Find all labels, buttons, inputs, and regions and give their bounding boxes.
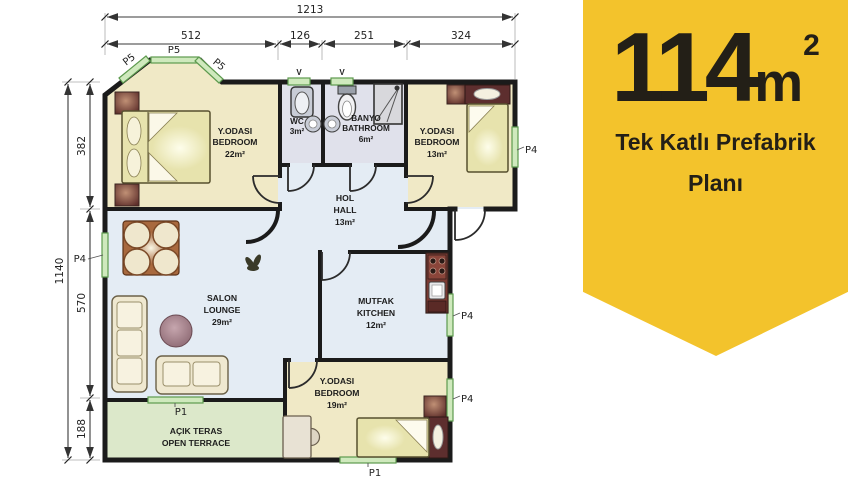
door-terrace: [148, 397, 203, 403]
sofa-cushion: [193, 362, 220, 386]
room-name-en: BEDROOM: [213, 137, 258, 147]
coffee-table: [160, 315, 192, 347]
tag-p5: P5: [168, 45, 180, 56]
dim-top-seg: 126: [290, 30, 310, 42]
dim-top-seg: 251: [354, 30, 374, 42]
dim-top-seg: 512: [181, 30, 201, 42]
room-name-tr: SALON: [207, 293, 237, 303]
room-name-en: BEDROOM: [415, 137, 460, 147]
badge-title-line1: Tek Katlı Prefabrik: [583, 128, 848, 157]
dining-chair: [153, 249, 179, 275]
room-area: 19m²: [327, 400, 347, 410]
room-area: 13m²: [427, 149, 447, 159]
tag-p4: P4: [525, 145, 537, 156]
pillow: [127, 149, 141, 177]
kitchen-fixtures: [426, 253, 448, 313]
room-name-tr: MUTFAK: [358, 296, 395, 306]
area-superscript: 2: [803, 29, 820, 62]
bed-highlight: [365, 425, 405, 451]
room-area: 6m²: [359, 135, 374, 144]
dim-top-seg: 324: [451, 30, 471, 42]
dim-left-seg: 188: [76, 419, 88, 439]
tag-p4: P4: [461, 311, 473, 322]
dim-left-seg: 382: [76, 136, 88, 156]
room-name-en: OPEN TERRACE: [162, 438, 231, 448]
room-name-en: BATHROOM: [342, 124, 390, 133]
room-name-tr: HOL: [336, 193, 354, 203]
tag-p4: P4: [461, 394, 473, 405]
pillow: [474, 89, 500, 100]
dining-chair: [124, 222, 150, 248]
area-badge: 114m2 Tek Katlı Prefabrik Planı: [583, 0, 848, 356]
burner: [430, 258, 436, 264]
door-hall-exterior: [455, 210, 485, 240]
tag-leader: [453, 313, 460, 316]
window-right-bedroom2: [512, 127, 518, 167]
room-name-tr: WC: [290, 117, 304, 126]
nightstand: [424, 396, 446, 417]
tag-vent: V: [296, 68, 302, 77]
toilet-tank: [338, 86, 356, 94]
window-right-bedroom3: [447, 379, 453, 421]
toilet-bowl: [343, 101, 352, 117]
nightstand: [115, 184, 139, 206]
shower-head: [395, 86, 400, 91]
vent-window-wc: [288, 78, 310, 85]
toilet-bowl: [295, 92, 309, 114]
dining-chair: [124, 249, 150, 275]
tag-leader: [453, 396, 460, 399]
sofa-cushion: [163, 362, 190, 386]
sink-basin: [309, 120, 317, 128]
dim-left-seg: 570: [76, 293, 88, 313]
room-name-tr: Y.ODASI: [420, 126, 454, 136]
bay-window-top: [151, 57, 198, 63]
tag-p1: P1: [175, 407, 187, 418]
area-value: 114m2: [583, 18, 848, 116]
sofa-cushion: [117, 302, 142, 328]
kitchen-sink-basin: [432, 285, 442, 296]
pillow: [433, 425, 443, 449]
area-unit: m: [754, 51, 803, 113]
room-name-en: KITCHEN: [357, 308, 395, 318]
desk: [283, 416, 311, 458]
room-area: 22m²: [225, 149, 245, 159]
sofa-cushion: [117, 330, 142, 356]
room-name-en: BEDROOM: [315, 388, 360, 398]
tag-p1: P1: [369, 468, 381, 479]
room-area: 29m²: [212, 317, 232, 327]
room-name-tr: BANYO: [351, 114, 381, 123]
label-hall: HOL HALL 13m²: [334, 193, 357, 227]
label-wc: WC 3m²: [290, 117, 305, 136]
dining-chair: [153, 222, 179, 248]
room-name-en: HALL: [334, 205, 357, 215]
floorplan-poster: Y.ODASI BEDROOM 22m² WC 3m² BANYO BATHRO…: [0, 0, 848, 480]
dim-top-total: 1213: [297, 4, 324, 16]
burner: [439, 268, 445, 274]
room-name-tr: Y.ODASI: [218, 126, 252, 136]
nightstand: [447, 85, 465, 104]
sofa-cushion: [117, 358, 142, 384]
area-number: 114: [611, 12, 754, 122]
badge-title-line2: Planı: [583, 169, 848, 198]
room-area: 12m²: [366, 320, 386, 330]
room-name-tr: Y.ODASI: [320, 376, 354, 386]
room-area: 3m²: [290, 127, 305, 136]
tag-vent: V: [339, 68, 345, 77]
pillow: [127, 117, 141, 145]
burner: [430, 268, 436, 274]
burner: [439, 258, 445, 264]
sink-basin: [328, 120, 336, 128]
vent-window-bath: [331, 78, 353, 85]
bed-highlight: [152, 126, 208, 170]
dim-left-total: 1140: [54, 258, 66, 285]
room-area: 13m²: [335, 217, 355, 227]
door-bedroom3-south: [340, 457, 396, 463]
tag-p4: P4: [74, 254, 86, 265]
room-name-en: LOUNGE: [204, 305, 241, 315]
kitchen-cabinet: [428, 301, 446, 312]
room-name-tr: AÇIK TERAS: [170, 426, 223, 436]
bed-highlight: [473, 128, 503, 166]
